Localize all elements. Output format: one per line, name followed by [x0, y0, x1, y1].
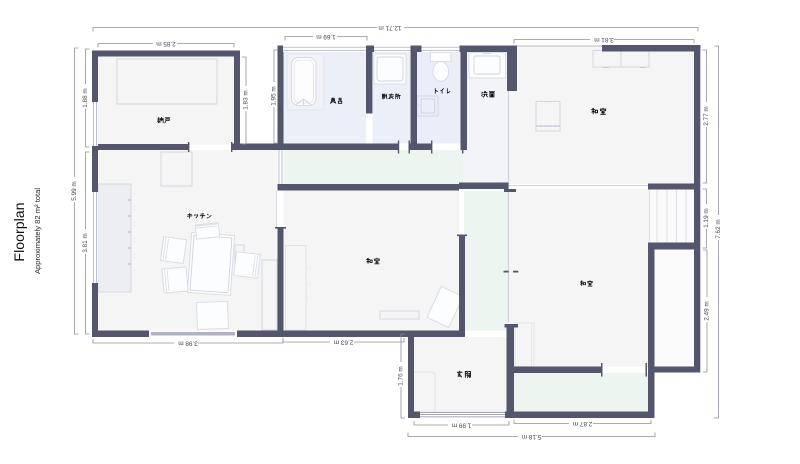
svg-text:2.49 m: 2.49 m	[704, 301, 711, 321]
svg-text:1.76 m: 1.76 m	[398, 366, 405, 386]
svg-text:3.98 m: 3.98 m	[178, 340, 198, 347]
svg-text:3.81 m: 3.81 m	[82, 233, 89, 253]
svg-text:1.83 m: 1.83 m	[243, 90, 250, 110]
svg-text:1.69 m: 1.69 m	[316, 33, 336, 40]
svg-text:1.95 m: 1.95 m	[271, 86, 278, 106]
svg-text:5.99 m: 5.99 m	[71, 181, 78, 201]
svg-text:5.18 m: 5.18 m	[522, 433, 542, 440]
svg-text:2.63 m: 2.63 m	[334, 339, 354, 346]
svg-text:2.87 m: 2.87 m	[573, 420, 593, 427]
svg-text:12.71 m: 12.71 m	[378, 24, 401, 31]
svg-text:2.77 m: 2.77 m	[703, 106, 710, 126]
svg-text:1.19 m: 1.19 m	[703, 208, 710, 228]
svg-text:1.99 m: 1.99 m	[452, 422, 472, 429]
svg-text:2.85 m: 2.85 m	[156, 40, 176, 47]
svg-text:Approximately 82 m² total: Approximately 82 m² total	[33, 188, 42, 274]
svg-text:7.62 m: 7.62 m	[715, 219, 722, 239]
svg-text:1.88 m: 1.88 m	[82, 88, 89, 108]
svg-text:Floorplan: Floorplan	[12, 202, 28, 261]
svg-text:3.81 m: 3.81 m	[594, 36, 614, 43]
